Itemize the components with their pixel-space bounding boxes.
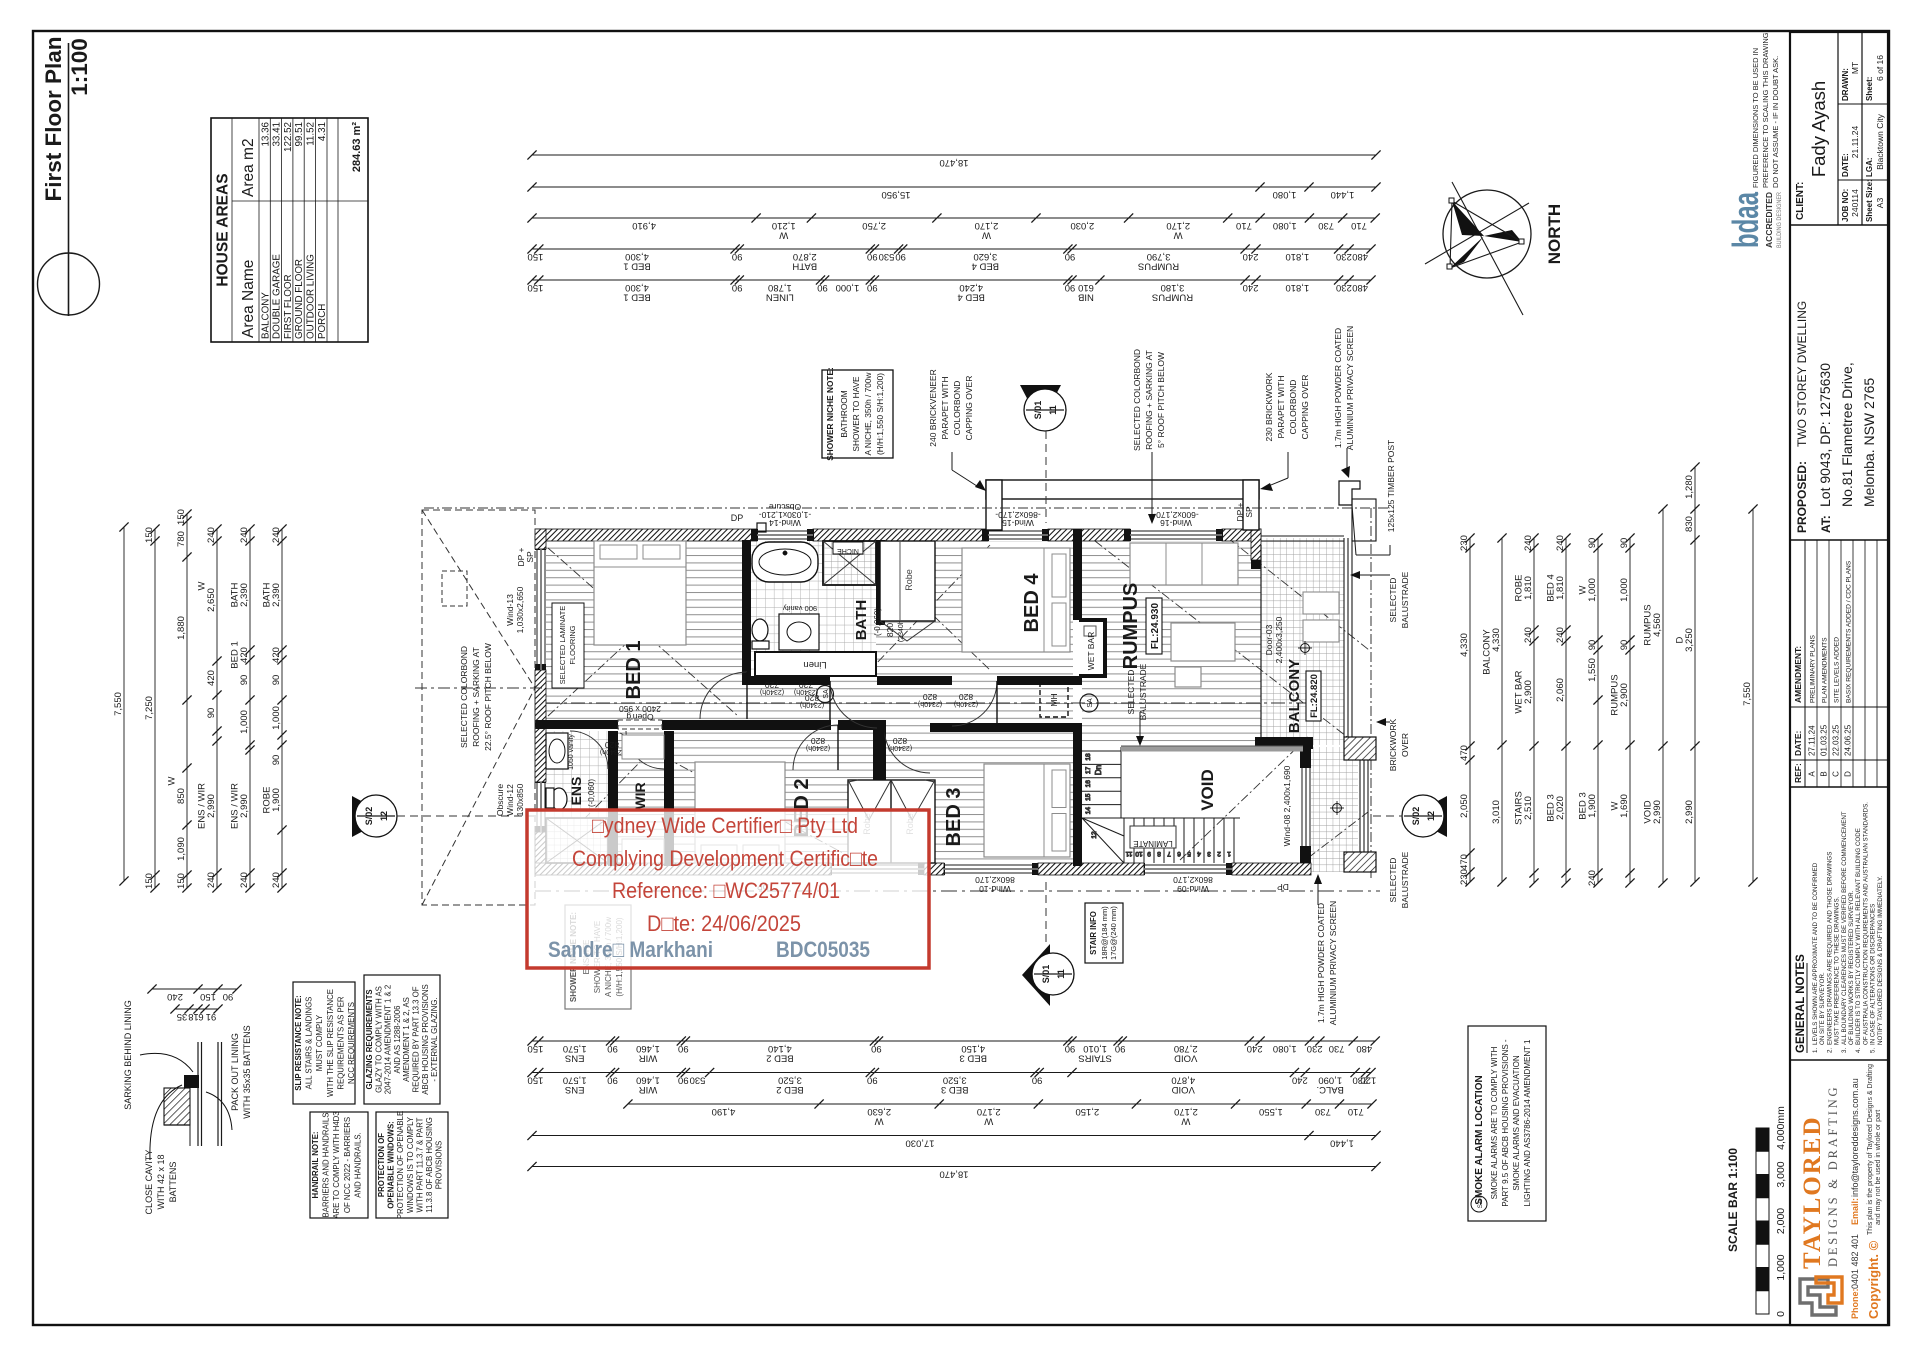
svg-text:ROOFING + SARKING AT: ROOFING + SARKING AT	[471, 647, 481, 747]
svg-text:1,090: 1,090	[1318, 1075, 1342, 1086]
svg-text:90: 90	[867, 251, 878, 262]
svg-text:OF BUILDING WORKS BY REGISTERE: OF BUILDING WORKS BY REGISTERED SURVEYOR…	[1848, 890, 1855, 1045]
svg-text:BATHROOM: BATHROOM	[839, 390, 849, 437]
svg-text:4,300: 4,300	[625, 282, 649, 293]
svg-text:Phone:: Phone:	[1850, 1288, 1860, 1319]
svg-text:1,440: 1,440	[1330, 1138, 1354, 1149]
svg-text:1,280: 1,280	[1684, 475, 1695, 499]
svg-text:SELECTED COLORBOND: SELECTED COLORBOND	[459, 646, 469, 748]
svg-text:OPENABLE WINDOWS:: OPENABLE WINDOWS:	[387, 1121, 396, 1209]
svg-text:240: 240	[1587, 870, 1598, 886]
svg-text:BED 4: BED 4	[957, 292, 984, 303]
svg-text:240: 240	[206, 872, 217, 888]
svg-text:This plan is the property of T: This plan is the property of Taylored De…	[1867, 1064, 1874, 1235]
svg-text:BALUSTRADE: BALUSTRADE	[1400, 571, 1410, 628]
svg-text:6 of 16: 6 of 16	[1875, 55, 1885, 81]
svg-text:18: 18	[188, 1011, 199, 1022]
svg-text:230: 230	[1336, 282, 1352, 293]
svg-text:240: 240	[1247, 1043, 1263, 1054]
svg-text:SP: SP	[1244, 506, 1254, 518]
svg-text:W: W	[875, 1116, 884, 1127]
svg-text:BRICKWORK: BRICKWORK	[1388, 718, 1398, 771]
svg-text:1,900: 1,900	[271, 788, 282, 812]
svg-text:11.3.8 OF ABCB HOUSING: 11.3.8 OF ABCB HOUSING	[425, 1117, 434, 1213]
svg-text:GLAZING REQUIREMENTS: GLAZING REQUIREMENTS	[365, 989, 374, 1089]
svg-text:90: 90	[1587, 538, 1598, 549]
svg-text:GENERAL NOTES: GENERAL NOTES	[1795, 954, 1807, 1053]
svg-text:SP: SP	[525, 551, 535, 563]
svg-text:Area m2: Area m2	[240, 138, 257, 197]
svg-text:1,810: 1,810	[1555, 576, 1566, 600]
svg-text:PACK OUT LINING: PACK OUT LINING	[230, 1033, 240, 1111]
svg-text:VOID: VOID	[1171, 1084, 1194, 1095]
svg-text:SCALE BAR 1:100: SCALE BAR 1:100	[1726, 1148, 1740, 1252]
svg-text:SARKING BEHIND LINING: SARKING BEHIND LINING	[123, 1000, 133, 1110]
svg-text:780: 780	[176, 531, 187, 547]
svg-text:NOTIFY TAYLORED DESIGNS & DRAF: NOTIFY TAYLORED DESIGNS & DRAFTING IMMED…	[1877, 876, 1884, 1045]
svg-text:1:100: 1:100	[67, 38, 92, 96]
svg-text:REF:: REF:	[1793, 763, 1803, 783]
svg-text:Melonba. NSW 2765: Melonba. NSW 2765	[1861, 378, 1877, 507]
svg-text:12: 12	[379, 811, 389, 821]
svg-text:PRELIMINARY PLANS: PRELIMINARY PLANS	[1810, 634, 1817, 703]
svg-text:- EXTERNAL GLAZING.: - EXTERNAL GLAZING.	[430, 997, 439, 1081]
svg-text:18R@(184 mm): 18R@(184 mm)	[1100, 906, 1109, 960]
svg-text:VOID: VOID	[1174, 1053, 1197, 1064]
svg-text:BATH: BATH	[853, 600, 870, 641]
svg-text:BED 3: BED 3	[959, 1053, 986, 1064]
svg-text:21.11.24: 21.11.24	[1850, 126, 1860, 159]
svg-text:12: 12	[1091, 831, 1098, 839]
svg-text:JOB NO:: JOB NO:	[1841, 189, 1850, 222]
svg-text:SMOKE ALARMS AND EVACUATION: SMOKE ALARMS AND EVACUATION	[1512, 1055, 1521, 1191]
svg-text:D: D	[1844, 771, 1853, 777]
svg-text:MUST COMPLY: MUST COMPLY	[315, 1014, 324, 1071]
svg-text:1,010: 1,010	[1083, 1043, 1107, 1054]
svg-text:16: 16	[1085, 780, 1092, 788]
svg-text:First Floor Plan: First Floor Plan	[41, 36, 66, 201]
svg-text:1.: 1.	[1812, 1048, 1819, 1053]
svg-text:90: 90	[678, 1043, 689, 1054]
svg-text:1,080: 1,080	[1273, 189, 1297, 200]
svg-text:1,900: 1,900	[1587, 794, 1598, 818]
svg-text:PORCH: PORCH	[317, 304, 328, 339]
svg-text:4,000mm: 4,000mm	[1775, 1106, 1787, 1150]
svg-text:150: 150	[527, 251, 543, 262]
svg-text:FLOORING: FLOORING	[568, 625, 577, 664]
svg-text:3,000: 3,000	[1775, 1161, 1787, 1187]
svg-text:PROTECTION OF: PROTECTION OF	[377, 1133, 386, 1197]
svg-text:1,550: 1,550	[1587, 658, 1598, 682]
svg-text:1,030x2,650: 1,030x2,650	[515, 586, 525, 633]
svg-text:9: 9	[1147, 850, 1151, 857]
svg-text:PROPOSED:: PROPOSED:	[1795, 461, 1809, 533]
svg-text:WIR: WIR	[639, 1084, 658, 1095]
svg-text:1,080: 1,080	[1273, 1043, 1297, 1054]
svg-text:GLAZY TO COMPLY WITH AS: GLAZY TO COMPLY WITH AS	[374, 986, 383, 1093]
svg-text:2,990: 2,990	[1652, 800, 1663, 824]
svg-text:13.36: 13.36	[260, 121, 271, 146]
svg-text:BED 3: BED 3	[943, 788, 965, 847]
svg-text:Fady Ayash: Fady Ayash	[1808, 81, 1829, 177]
svg-text:4,140: 4,140	[768, 1043, 792, 1054]
svg-text:ACCREDITED: ACCREDITED	[1764, 192, 1774, 248]
svg-text:1,000: 1,000	[1619, 578, 1630, 602]
svg-text:860x2,170: 860x2,170	[1173, 875, 1213, 885]
svg-text:2,390: 2,390	[239, 583, 250, 607]
svg-text:4,560: 4,560	[1652, 613, 1663, 637]
svg-text:850: 850	[176, 788, 187, 804]
svg-text:PLAN AMENDMENTS: PLAN AMENDMENTS	[1822, 637, 1829, 703]
svg-text:STAIRS: STAIRS	[1078, 1053, 1112, 1064]
svg-text:REQUIRED BY PART 13.3 OF: REQUIRED BY PART 13.3 OF	[412, 986, 421, 1092]
svg-text:BALUSTRADE: BALUSTRADE	[1400, 851, 1410, 908]
svg-text:2,000: 2,000	[1775, 1208, 1787, 1234]
svg-text:Linen: Linen	[803, 659, 826, 670]
svg-text:WET BAR: WET BAR	[1514, 670, 1525, 713]
svg-text:(2340h): (2340h)	[918, 700, 942, 707]
svg-text:W: W	[197, 581, 208, 590]
svg-text:2,990: 2,990	[1684, 800, 1695, 824]
svg-text:4,240: 4,240	[959, 282, 983, 293]
svg-text:24.06.25: 24.06.25	[1844, 724, 1853, 756]
svg-text:1,000: 1,000	[1775, 1254, 1787, 1280]
svg-text:1050 vanity: 1050 vanity	[568, 734, 575, 770]
svg-text:Sheet Size:: Sheet Size:	[1865, 179, 1874, 222]
svg-text:17,030: 17,030	[905, 1138, 934, 1149]
svg-text:1,810: 1,810	[1523, 576, 1534, 600]
svg-text:A3: A3	[1875, 198, 1885, 209]
svg-text:530: 530	[690, 1075, 706, 1086]
svg-text:90: 90	[732, 282, 743, 293]
svg-text:(-0,060): (-0,060)	[873, 608, 882, 636]
svg-text:ROOFING + SARKING AT: ROOFING + SARKING AT	[1144, 350, 1154, 450]
svg-text:PROTECTION OF OPENABLE: PROTECTION OF OPENABLE	[396, 1111, 405, 1219]
svg-text:SLIP RESISTANCE NOTE:: SLIP RESISTANCE NOTE:	[294, 995, 303, 1090]
svg-text:14: 14	[1085, 807, 1092, 815]
svg-text:530: 530	[879, 251, 895, 262]
svg-text:SMOKE ALARM LOCATION: SMOKE ALARM LOCATION	[1474, 1075, 1485, 1204]
svg-text:150: 150	[176, 509, 187, 525]
svg-text:240: 240	[1243, 282, 1259, 293]
svg-text:90: 90	[271, 675, 282, 686]
svg-text:2,170: 2,170	[1174, 1106, 1198, 1117]
svg-text:150: 150	[200, 991, 216, 1002]
svg-text:22.03.25: 22.03.25	[1832, 724, 1841, 756]
svg-text:35: 35	[177, 1011, 188, 1022]
svg-text:ROBE: ROBE	[262, 787, 273, 814]
svg-text:1,460: 1,460	[636, 1075, 660, 1086]
svg-text:AND AS 1288-2006: AND AS 1288-2006	[393, 1005, 402, 1073]
svg-text:240: 240	[271, 527, 282, 543]
svg-text:7,250: 7,250	[144, 696, 155, 720]
svg-text:C: C	[1832, 771, 1841, 777]
svg-text:(-0,060): (-0,060)	[587, 779, 596, 807]
svg-text:W: W	[984, 1116, 993, 1127]
svg-text:FIGURED DIMENSIONS TO BE USED: FIGURED DIMENSIONS TO BE USED IN	[1751, 48, 1760, 188]
svg-text:90: 90	[732, 251, 743, 262]
svg-text:3,790: 3,790	[1147, 251, 1171, 262]
svg-text:ALUMINIUM PRIVACY SCREEN: ALUMINIUM PRIVACY SCREEN	[1345, 326, 1355, 450]
svg-text:LEVELS SHOWN ARE APPROXIMATE A: LEVELS SHOWN ARE APPROXIMATE AND TO BE C…	[1812, 862, 1819, 1045]
svg-text:AT:: AT:	[1819, 515, 1833, 533]
svg-text:(2340h): (2340h)	[800, 701, 824, 708]
svg-text:230: 230	[1307, 1043, 1323, 1054]
svg-text:and may not be used in whole o: and may not be used in whole or part	[1875, 1110, 1882, 1225]
svg-text:710: 710	[1348, 1106, 1364, 1117]
svg-text:IN CASE OF ALTERATIONS OR DISC: IN CASE OF ALTERATIONS OR DISCREPANCIES	[1870, 904, 1877, 1045]
svg-text:VOID: VOID	[1198, 769, 1217, 811]
svg-text:BUILDER IS TO STRICTLY COMPLY: BUILDER IS TO STRICTLY COMPLY WITH ALL R…	[1855, 828, 1862, 1045]
svg-text:Wind-13: Wind-13	[505, 594, 515, 626]
svg-text:240: 240	[1523, 535, 1534, 551]
svg-text:3: 3	[1207, 850, 1211, 857]
svg-text:(2340h): (2340h)	[600, 748, 624, 755]
svg-text:AMENDMENT 1 & 2, AS: AMENDMENT 1 & 2, AS	[402, 997, 411, 1082]
svg-text:WITH 42 x 18: WITH 42 x 18	[156, 1154, 166, 1209]
svg-text:11: 11	[1048, 405, 1058, 415]
svg-text:BED 4: BED 4	[972, 261, 999, 272]
svg-text:90: 90	[1115, 1043, 1126, 1054]
svg-text:B: B	[1820, 771, 1829, 776]
svg-text:240: 240	[271, 872, 282, 888]
svg-text:3,520: 3,520	[778, 1075, 802, 1086]
svg-text:150: 150	[144, 527, 155, 543]
svg-text:90: 90	[607, 1075, 618, 1086]
svg-text:(2340h): (2340h)	[760, 688, 784, 695]
svg-text:1,210: 1,210	[772, 220, 796, 231]
svg-text:91: 91	[206, 1011, 217, 1022]
svg-text:Obscure: Obscure	[495, 784, 505, 816]
svg-text:1,690: 1,690	[1619, 794, 1630, 818]
svg-text:Door-03: Door-03	[1264, 624, 1274, 655]
svg-text:STAIRS: STAIRS	[1514, 791, 1525, 825]
svg-text:90: 90	[1032, 1075, 1043, 1086]
svg-text:BALCONY: BALCONY	[1482, 629, 1493, 675]
svg-text:ENS: ENS	[565, 1084, 585, 1095]
svg-text:RUMPUS: RUMPUS	[1610, 674, 1621, 715]
svg-text:(H/H:1,550 S/H:1,200): (H/H:1,550 S/H:1,200)	[875, 373, 885, 455]
svg-text:90: 90	[239, 675, 250, 686]
svg-text:NORTH: NORTH	[1545, 204, 1564, 264]
svg-text:90: 90	[1619, 640, 1630, 651]
svg-text:240: 240	[167, 991, 183, 1002]
svg-text:RUMPUS: RUMPUS	[1138, 261, 1179, 272]
svg-text:bdaa: bdaa	[1725, 191, 1766, 248]
svg-text:2,390: 2,390	[271, 583, 282, 607]
svg-text:CLIENT:: CLIENT:	[1795, 182, 1806, 220]
svg-text:7: 7	[1167, 850, 1171, 857]
svg-text:BED 1: BED 1	[230, 641, 241, 668]
svg-text:240 BRICKVENEER: 240 BRICKVENEER	[928, 369, 938, 446]
svg-text:240: 240	[206, 527, 217, 543]
svg-text:SHOWER TO HAVE: SHOWER TO HAVE	[851, 376, 861, 452]
svg-text:2: 2	[1217, 850, 1221, 857]
svg-text:ABCB HOUSING PROVISIONS: ABCB HOUSING PROVISIONS	[421, 984, 430, 1094]
svg-text:240: 240	[239, 872, 250, 888]
svg-text:150: 150	[144, 873, 155, 889]
svg-text:BATTENS: BATTENS	[168, 1162, 178, 1203]
svg-text:WITH THE SLIP RESISTANCE: WITH THE SLIP RESISTANCE	[326, 989, 335, 1097]
svg-text:2,990: 2,990	[239, 794, 250, 818]
svg-text:□ydney Wide Certifier□ Pty Ltd: □ydney Wide Certifier□ Pty Ltd	[592, 813, 858, 838]
svg-text:230: 230	[1336, 251, 1352, 262]
svg-text:0401 482 401: 0401 482 401	[1850, 1234, 1860, 1289]
svg-text:830: 830	[1684, 516, 1695, 532]
svg-text:2,030: 2,030	[1070, 220, 1094, 231]
svg-text:1,880: 1,880	[176, 616, 187, 640]
svg-text:D□te: 24/06/2025: D□te: 24/06/2025	[647, 911, 801, 936]
svg-text:BED 3: BED 3	[1578, 792, 1589, 819]
svg-text:122.52: 122.52	[283, 122, 294, 152]
svg-text:2,870: 2,870	[793, 251, 817, 262]
svg-text:5: 5	[1187, 850, 1191, 857]
svg-text:ENS: ENS	[568, 777, 584, 806]
svg-text:4,190: 4,190	[712, 1106, 736, 1117]
svg-text:W: W	[982, 230, 991, 241]
svg-text:90: 90	[1587, 640, 1598, 651]
svg-text:90: 90	[867, 1075, 878, 1086]
svg-text:A NICHE, 350h / 700w: A NICHE, 350h / 700w	[863, 371, 873, 455]
svg-text:PARAPET WITH: PARAPET WITH	[940, 377, 950, 440]
svg-text:2,020: 2,020	[1555, 796, 1566, 820]
svg-text:33.41: 33.41	[272, 122, 283, 147]
svg-text:150: 150	[176, 873, 187, 889]
svg-text:610: 610	[1078, 282, 1094, 293]
svg-text:ROBE: ROBE	[1514, 575, 1525, 602]
svg-text:2,170: 2,170	[975, 220, 999, 231]
svg-text:DP: DP	[731, 513, 744, 523]
svg-text:2.: 2.	[1826, 1048, 1833, 1053]
svg-text:BALCONY: BALCONY	[1286, 659, 1303, 733]
svg-text:WITH PART 11.3.7 & PART: WITH PART 11.3.7 & PART	[415, 1117, 424, 1212]
svg-text:WITH 35x35 BATTENS: WITH 35x35 BATTENS	[242, 1025, 252, 1118]
svg-text:860x2,170: 860x2,170	[975, 875, 1015, 885]
svg-text:BALCONY: BALCONY	[260, 292, 271, 339]
svg-text:420: 420	[271, 647, 282, 663]
svg-text:22.5° ROOF PITCH BELOW: 22.5° ROOF PITCH BELOW	[483, 643, 493, 751]
svg-text:2,050: 2,050	[1459, 794, 1470, 818]
svg-text:Lot 9043, DP: 1275630: Lot 9043, DP: 1275630	[1817, 363, 1833, 507]
svg-text:90: 90	[1065, 282, 1076, 293]
svg-text:10: 10	[1135, 850, 1143, 857]
svg-text:2,900: 2,900	[1619, 683, 1630, 707]
svg-text:2,510: 2,510	[1523, 796, 1534, 820]
svg-text:DATE:: DATE:	[1793, 730, 1803, 756]
svg-text:PART 9.5 OF ABCB HOUSING PROVI: PART 9.5 OF ABCB HOUSING PROVISIONS -	[1501, 1039, 1510, 1206]
svg-text:820: 820	[885, 623, 895, 637]
svg-text:240: 240	[1243, 251, 1259, 262]
svg-text:FL:24.930: FL:24.930	[1150, 602, 1161, 649]
svg-text:SELECTED LAMINATE: SELECTED LAMINATE	[558, 606, 567, 685]
svg-text:S/02: S/02	[1411, 807, 1421, 826]
svg-text:SA: SA	[823, 689, 830, 699]
svg-text:BED 2: BED 2	[776, 1084, 803, 1095]
svg-text:S/01: S/01	[1033, 401, 1043, 420]
svg-text:710: 710	[1236, 220, 1252, 231]
svg-text:7,550: 7,550	[1742, 682, 1753, 706]
svg-text:Reference: □WC25774/01: Reference: □WC25774/01	[612, 878, 840, 903]
svg-text:WET BAR: WET BAR	[1086, 632, 1096, 671]
svg-text:LGA:: LGA:	[1865, 157, 1874, 177]
svg-text:COLORBOND: COLORBOND	[952, 381, 962, 436]
svg-text:2,630: 2,630	[867, 1106, 891, 1117]
svg-text:470: 470	[1459, 745, 1470, 761]
svg-text:GROUND FLOOR: GROUND FLOOR	[294, 259, 305, 339]
svg-text:OF AUSTRALIA CONSTRUCTION REQU: OF AUSTRALIA CONSTRUCTION REQUIREMENTS A…	[1862, 802, 1869, 1045]
svg-text:90: 90	[871, 1043, 882, 1054]
svg-text:1,000: 1,000	[1587, 578, 1598, 602]
svg-text:Complying Development Certific: Complying Development Certific□te	[572, 846, 878, 871]
svg-text:1: 1	[1227, 850, 1231, 857]
svg-text:18: 18	[1085, 753, 1092, 761]
svg-text:2,150: 2,150	[1075, 1106, 1099, 1117]
svg-text:LIGHTING AND AS3786-2014 AMEND: LIGHTING AND AS3786-2014 AMENDMENT 1	[1523, 1039, 1532, 1207]
svg-text:Area Name: Area Name	[240, 260, 257, 338]
svg-text:90: 90	[817, 282, 828, 293]
svg-text:-600x2,170-: -600x2,170-	[1153, 510, 1199, 520]
svg-text:AMENDMENT:: AMENDMENT:	[1793, 646, 1803, 703]
svg-text:Sandre□ Markhani: Sandre□ Markhani	[548, 937, 713, 962]
svg-text:18,470: 18,470	[939, 1169, 968, 1180]
svg-text:150: 150	[527, 1075, 543, 1086]
svg-text:BED 4: BED 4	[1021, 573, 1043, 633]
svg-text:3,010: 3,010	[1491, 800, 1502, 824]
svg-text:4.31: 4.31	[317, 122, 328, 141]
svg-text:BUILDING DESIGNER: BUILDING DESIGNER	[1776, 192, 1783, 248]
svg-text:CAPPING OVER: CAPPING OVER	[964, 376, 974, 441]
svg-text:730: 730	[1315, 1106, 1331, 1117]
svg-text:2,900: 2,900	[1523, 680, 1534, 704]
svg-text:4,870: 4,870	[1171, 1075, 1195, 1086]
svg-text:NIB: NIB	[1078, 292, 1094, 303]
svg-text:BED 3: BED 3	[941, 1084, 968, 1095]
svg-text:PARAPET WITH: PARAPET WITH	[1276, 376, 1286, 439]
svg-text:WINDOWS IS TO COMPLY: WINDOWS IS TO COMPLY	[406, 1116, 415, 1213]
svg-text:3,250: 3,250	[1684, 628, 1695, 652]
svg-text:12: 12	[1426, 811, 1436, 821]
svg-text:ENS / WIR: ENS / WIR	[230, 783, 241, 829]
svg-text:480: 480	[1352, 282, 1368, 293]
svg-text:230: 230	[1459, 535, 1470, 551]
svg-text:(2340h): (2340h)	[954, 700, 978, 707]
svg-text:NCC REQUIREMENTS: NCC REQUIREMENTS	[347, 1002, 356, 1084]
svg-text:STAIR INFO: STAIR INFO	[1089, 911, 1098, 955]
svg-text:1,000: 1,000	[271, 706, 282, 730]
svg-text:ENGINEERS DRAWINGS ARE REQUIRE: ENGINEERS DRAWINGS ARE REQUIRED AND THOS…	[1826, 852, 1833, 1045]
svg-text:S/01: S/01	[1041, 965, 1051, 984]
svg-text:90: 90	[1619, 538, 1630, 549]
svg-text:480: 480	[1356, 1043, 1372, 1054]
svg-text:NICHE: NICHE	[837, 547, 859, 554]
svg-text:240: 240	[1555, 627, 1566, 643]
svg-text:2,750: 2,750	[862, 220, 886, 231]
svg-text:Dn: Dn	[1094, 765, 1103, 775]
svg-text:ENS: ENS	[565, 1053, 585, 1064]
svg-text:8: 8	[1157, 850, 1161, 857]
svg-text:FIRST FLOOR: FIRST FLOOR	[283, 274, 294, 339]
svg-text:ALL STAIRS & LANDINGS: ALL STAIRS & LANDINGS	[305, 997, 314, 1090]
svg-text:ON SITE BY SURVEYOR.: ON SITE BY SURVEYOR.	[1819, 972, 1826, 1045]
svg-text:DATE:: DATE:	[1841, 153, 1850, 177]
svg-text:90: 90	[1065, 251, 1076, 262]
svg-text:Wind-08 2,400x1,690: Wind-08 2,400x1,690	[1282, 765, 1292, 846]
svg-text:90: 90	[895, 251, 906, 262]
svg-text:ENS / WIR: ENS / WIR	[197, 783, 208, 829]
svg-text:17G@(240 mm): 17G@(240 mm)	[1109, 906, 1118, 960]
svg-text:420: 420	[239, 647, 250, 663]
svg-text:730: 730	[1329, 1043, 1345, 1054]
